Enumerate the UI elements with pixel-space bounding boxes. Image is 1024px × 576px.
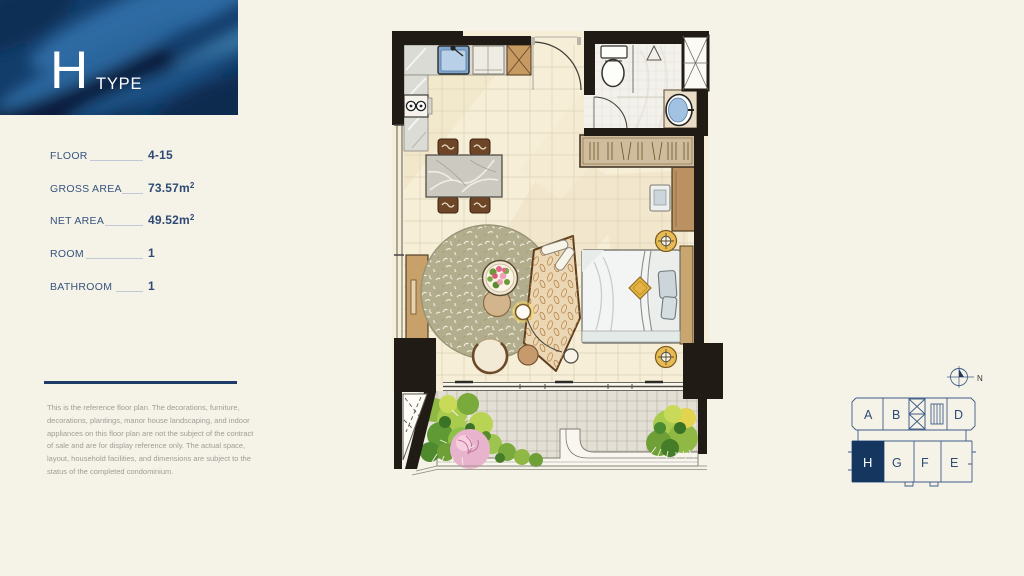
svg-text:H: H xyxy=(863,455,872,470)
svg-text:E: E xyxy=(950,456,958,470)
svg-text:D: D xyxy=(954,408,963,422)
svg-text:A: A xyxy=(864,408,873,422)
svg-text:F: F xyxy=(921,456,929,470)
svg-text:N: N xyxy=(977,374,983,383)
svg-text:G: G xyxy=(892,456,902,470)
svg-text:B: B xyxy=(892,408,900,422)
